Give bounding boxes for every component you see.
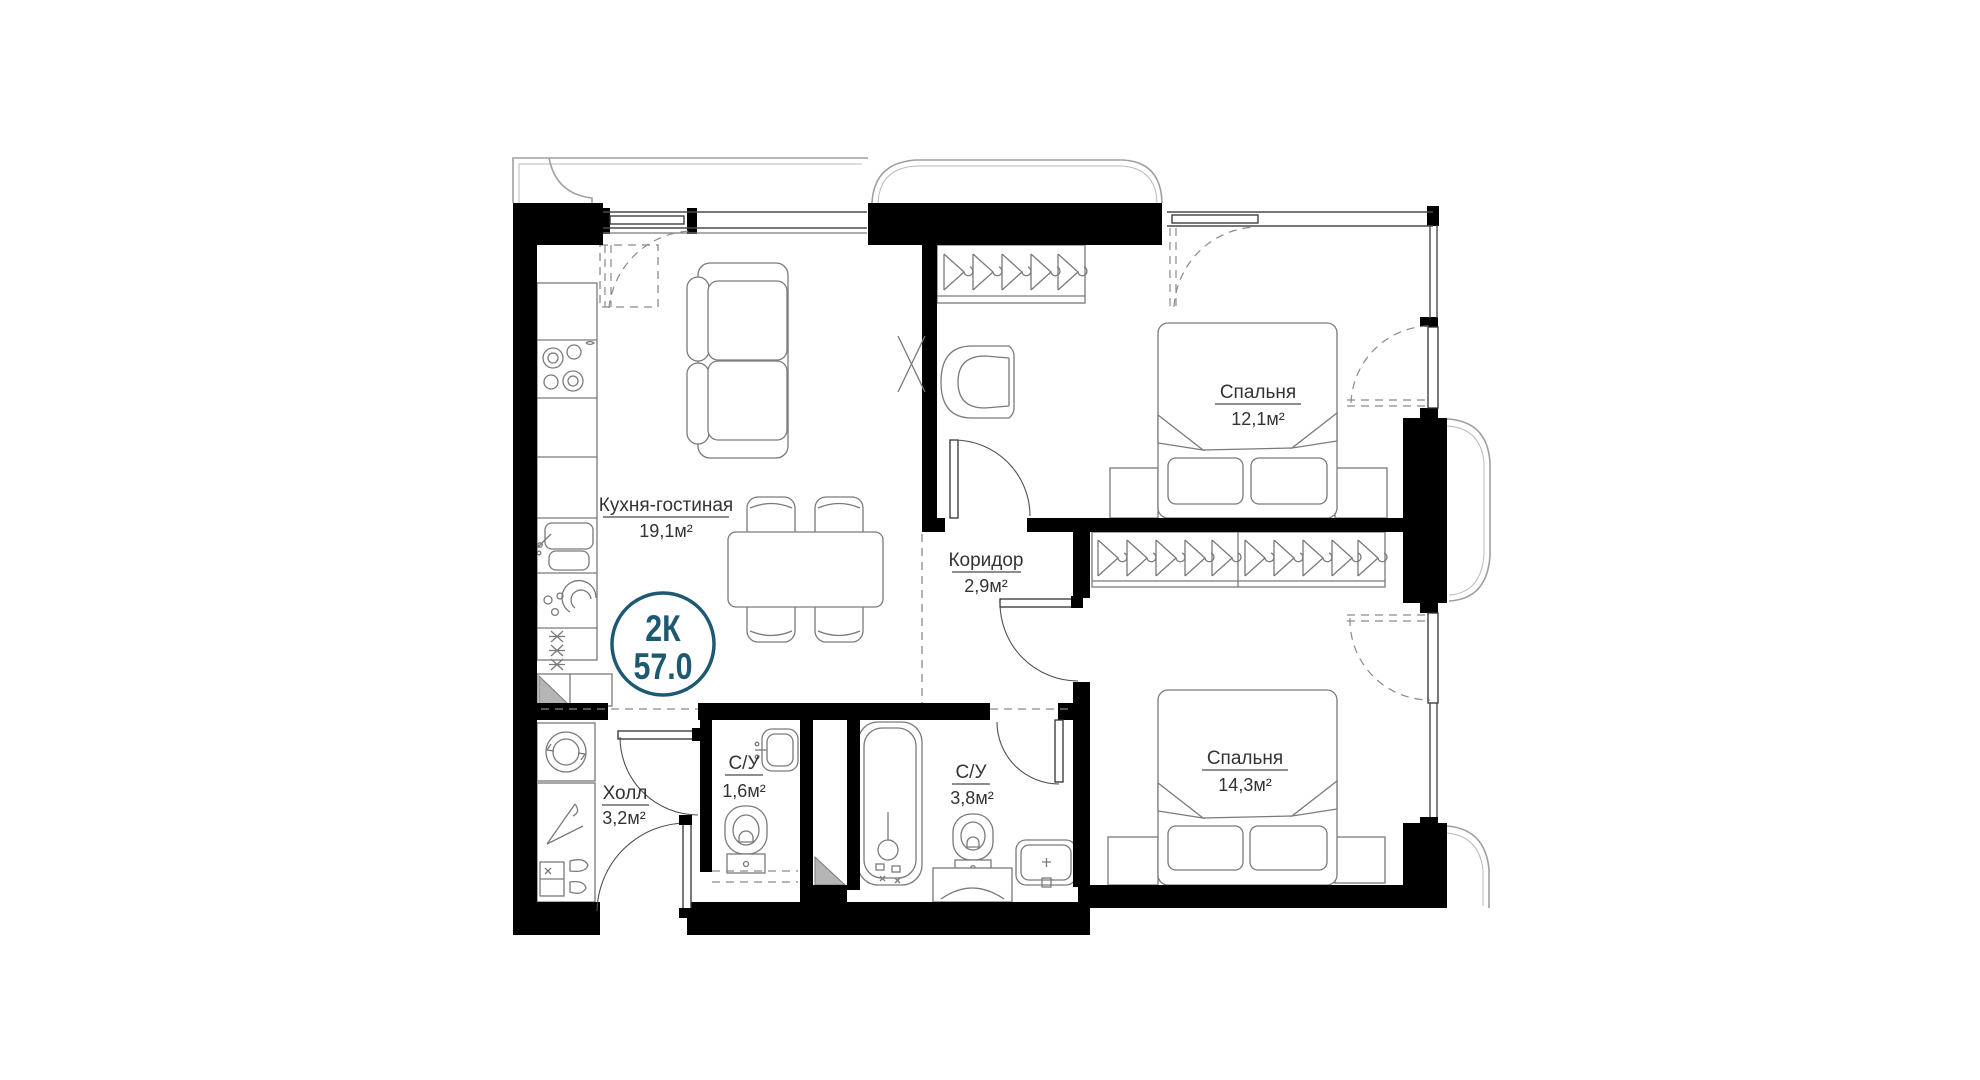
svg-text:1,6м²: 1,6м²: [722, 781, 765, 801]
svg-text:С/У: С/У: [728, 753, 760, 774]
bathtub-icon: [858, 722, 922, 885]
svg-text:С/У: С/У: [955, 762, 987, 783]
svg-text:Холл: Холл: [603, 783, 648, 804]
svg-text:14,3м²: 14,3м²: [1218, 775, 1271, 795]
bedroom1-furniture: [937, 245, 1387, 518]
bedroom2-door: [1000, 596, 1083, 681]
svg-text:Кухня-гостиная: Кухня-гостиная: [599, 495, 733, 516]
svg-text:Коридор: Коридор: [948, 550, 1023, 571]
sink-icon: [1016, 840, 1076, 887]
bathroom-small-fixtures: [725, 729, 798, 873]
nightstand: [1335, 468, 1387, 518]
bedroom1-right-window-door: [1347, 225, 1438, 408]
wall-break-icon: [898, 336, 925, 392]
svg-text:3,8м²: 3,8м²: [950, 788, 993, 808]
toilet-icon: [725, 806, 767, 873]
room-label-kitchen-living: Кухня-гостиная 19,1м²: [599, 495, 733, 541]
sink-icon: [755, 729, 798, 771]
svg-text:Спальня: Спальня: [1207, 748, 1283, 769]
room-label-bathroom-small: С/У 1,6м²: [722, 753, 765, 801]
entrance-door: [597, 815, 692, 918]
floor-plan-svg: Кухня-гостиная 19,1м² Коридор 2,9м² Спал…: [0, 0, 1980, 1080]
toilet-icon: [953, 814, 993, 876]
svg-text:3,2м²: 3,2м²: [602, 808, 645, 828]
kitchen-shaft-box: [537, 674, 612, 706]
bedroom1-door: [950, 440, 1030, 518]
fridge-dashed: [600, 245, 658, 307]
room-label-bathroom-big: С/У 3,8м²: [950, 762, 993, 808]
badge-total-area: 57.0: [633, 646, 692, 688]
washer-icon: [933, 868, 1012, 902]
room-label-hall: Холл 3,2м²: [602, 783, 649, 828]
armchair: [941, 346, 1014, 418]
bathroom-big-door: [997, 720, 1063, 784]
dining-set: [728, 497, 883, 642]
nightstand: [1108, 837, 1158, 885]
dining-table: [728, 532, 883, 607]
nightstand: [1335, 837, 1385, 883]
apartment-badge: 2К 57.0: [612, 593, 714, 695]
bedroom1-balcony-door-window: [1167, 212, 1433, 307]
bedroom2-wardrobe: [1092, 532, 1387, 587]
bedroom2-right-door-window: [1347, 613, 1438, 817]
bathroom-big-fixtures: [858, 722, 1076, 902]
hall-closet: [537, 723, 595, 902]
svg-text:2,9м²: 2,9м²: [964, 576, 1007, 596]
wardrobe: [937, 245, 1085, 303]
floor-plan-page: Кухня-гостиная 19,1м² Коридор 2,9м² Спал…: [0, 0, 1980, 1080]
badge-rooms-type: 2К: [645, 608, 681, 650]
room-label-corridor: Коридор 2,9м²: [948, 550, 1023, 596]
vent-shaft: [815, 857, 845, 885]
svg-text:19,1м²: 19,1м²: [639, 521, 692, 541]
svg-text:12,1м²: 12,1м²: [1231, 409, 1284, 429]
svg-text:Спальня: Спальня: [1220, 382, 1296, 403]
vent-x-marks-icon: [549, 631, 565, 670]
nightstand: [1110, 468, 1158, 518]
sofa: [687, 263, 788, 458]
